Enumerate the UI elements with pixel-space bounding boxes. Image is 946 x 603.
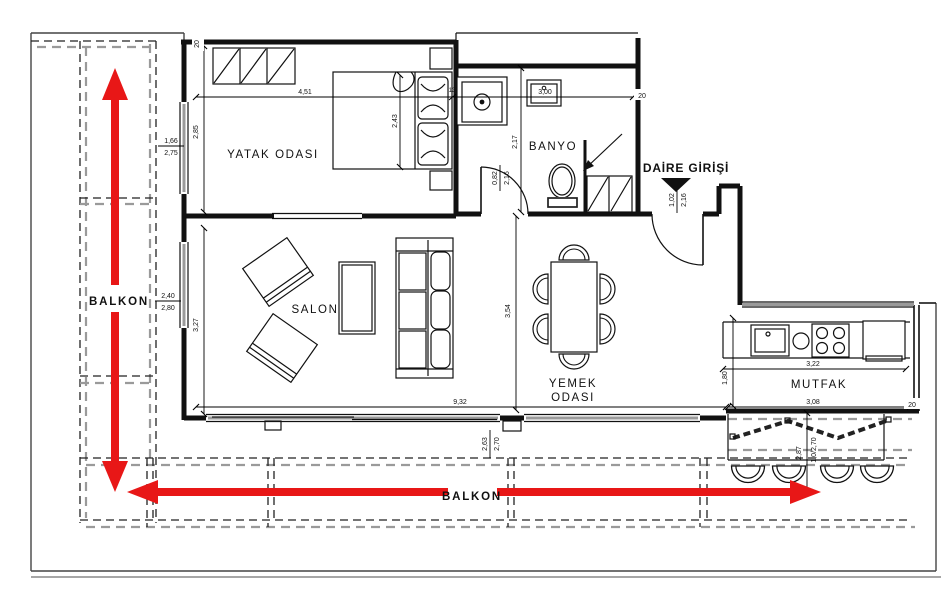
armchair-2 bbox=[247, 314, 318, 383]
dim-wall20-kitchen: 20 bbox=[908, 402, 916, 409]
dim-bath-width: 3,00 bbox=[538, 89, 552, 96]
wall-pier-notch bbox=[503, 421, 521, 431]
svg-text:1,66: 1,66 bbox=[164, 138, 178, 145]
threshold-step bbox=[265, 421, 281, 430]
dim-slider: 2,63 2,70 bbox=[482, 430, 501, 458]
dim-bedroom-width: 4,51 bbox=[298, 89, 312, 96]
svg-text:2,80: 2,80 bbox=[161, 305, 175, 312]
floor-plan: 4,51 13 3,00 20 2,43 2,85 20 3,27 1,66 2… bbox=[0, 0, 946, 603]
furniture-salon bbox=[243, 238, 453, 383]
balcony-direction-arrows: BALKON bbox=[102, 68, 821, 504]
coffee-table bbox=[339, 262, 375, 334]
dim-counter-width: 3,22 bbox=[806, 361, 820, 368]
label-balcony-bottom: BALKON bbox=[442, 491, 502, 503]
bar-stool bbox=[732, 466, 765, 483]
label-entrance: DAİRE GİRİŞİ bbox=[643, 160, 729, 175]
dim-bedroom-height: 2,85 bbox=[193, 125, 200, 139]
bedroom-window bbox=[180, 102, 188, 194]
floor-plan-page: 4,51 13 3,00 20 2,43 2,85 20 3,27 1,66 2… bbox=[0, 0, 946, 603]
bedroom-pocket-door bbox=[272, 214, 362, 219]
dim-wall20-bath: 20 bbox=[638, 93, 646, 100]
dining-chair bbox=[600, 274, 615, 304]
armchair-1 bbox=[243, 238, 314, 307]
dining-chair bbox=[600, 314, 615, 344]
shower bbox=[457, 77, 507, 125]
vertical-arrow bbox=[102, 68, 128, 492]
entrance-door bbox=[652, 214, 703, 265]
label-kitchen: MUTFAK bbox=[791, 379, 847, 391]
svg-text:2,75: 2,75 bbox=[164, 150, 178, 157]
label-dining-1: YEMEK bbox=[549, 378, 597, 390]
dim-kitchen-width: 3,08 bbox=[806, 399, 820, 406]
entrance-marker bbox=[661, 178, 691, 192]
svg-text:0,82: 0,82 bbox=[492, 171, 499, 185]
furniture-dining bbox=[533, 245, 615, 369]
label-salon: SALON bbox=[292, 304, 339, 316]
svg-text:2,40: 2,40 bbox=[161, 293, 175, 300]
svg-text:1,02: 1,02 bbox=[669, 193, 676, 207]
fridge bbox=[863, 321, 905, 361]
bar-stool bbox=[773, 466, 806, 483]
label-bedroom: YATAK ODASI bbox=[227, 149, 319, 161]
dim-kitchen-opening: 1,80 bbox=[722, 371, 729, 385]
svg-text:2,70: 2,70 bbox=[494, 437, 501, 451]
svg-text:2,16: 2,16 bbox=[504, 171, 511, 185]
dining-table bbox=[551, 262, 597, 352]
dim-balcony-depth: 2,87 bbox=[796, 446, 803, 460]
dim-salon-window: 2,40 2,80 bbox=[155, 293, 181, 312]
dining-chair bbox=[559, 354, 589, 369]
dining-chair bbox=[559, 245, 589, 260]
bar-stool bbox=[821, 466, 854, 483]
dining-chair bbox=[533, 314, 548, 344]
furniture-bedroom bbox=[213, 48, 452, 190]
dim-bottom-width: 9,32 bbox=[453, 399, 467, 406]
dim-bath-height: 2,17 bbox=[512, 135, 519, 149]
nightstand-bottom bbox=[430, 171, 452, 190]
toilet bbox=[548, 164, 577, 207]
svg-text:2,63: 2,63 bbox=[482, 437, 489, 451]
label-bathroom: BANYO bbox=[529, 141, 577, 153]
label-dining-2: ODASI bbox=[551, 392, 595, 404]
dining-window bbox=[524, 415, 700, 422]
dining-chair bbox=[533, 274, 548, 304]
dim-salon-height: 3,27 bbox=[193, 318, 200, 332]
balcony-left-outline bbox=[31, 41, 157, 523]
bar-stool bbox=[861, 466, 894, 483]
wardrobe bbox=[213, 48, 295, 84]
furniture-kitchen bbox=[723, 321, 910, 361]
salon-sliding-window bbox=[206, 415, 500, 422]
sofa bbox=[396, 238, 453, 378]
label-balcony-left: BALKON bbox=[89, 296, 149, 308]
dim-wall13: 13 bbox=[449, 88, 456, 94]
nightstand-top bbox=[430, 48, 452, 69]
stove bbox=[812, 324, 849, 357]
hall-closet bbox=[587, 176, 632, 212]
dim-entry-door: 1,02 2,16 bbox=[669, 187, 688, 213]
salon-window bbox=[180, 242, 188, 328]
folding-door bbox=[733, 420, 889, 438]
kitchen-window bbox=[742, 302, 914, 307]
svg-text:2,16: 2,16 bbox=[681, 193, 688, 207]
dim-bed-depth: 2,43 bbox=[392, 114, 399, 128]
level-arrow bbox=[583, 134, 622, 171]
dim-fold-door: 1,0/2,70 bbox=[811, 437, 818, 462]
single-burner bbox=[793, 333, 809, 349]
kitchen-sink bbox=[751, 325, 789, 356]
dim-wall20-top: 20 bbox=[194, 40, 201, 48]
dim-dining-height: 3,54 bbox=[505, 304, 512, 318]
